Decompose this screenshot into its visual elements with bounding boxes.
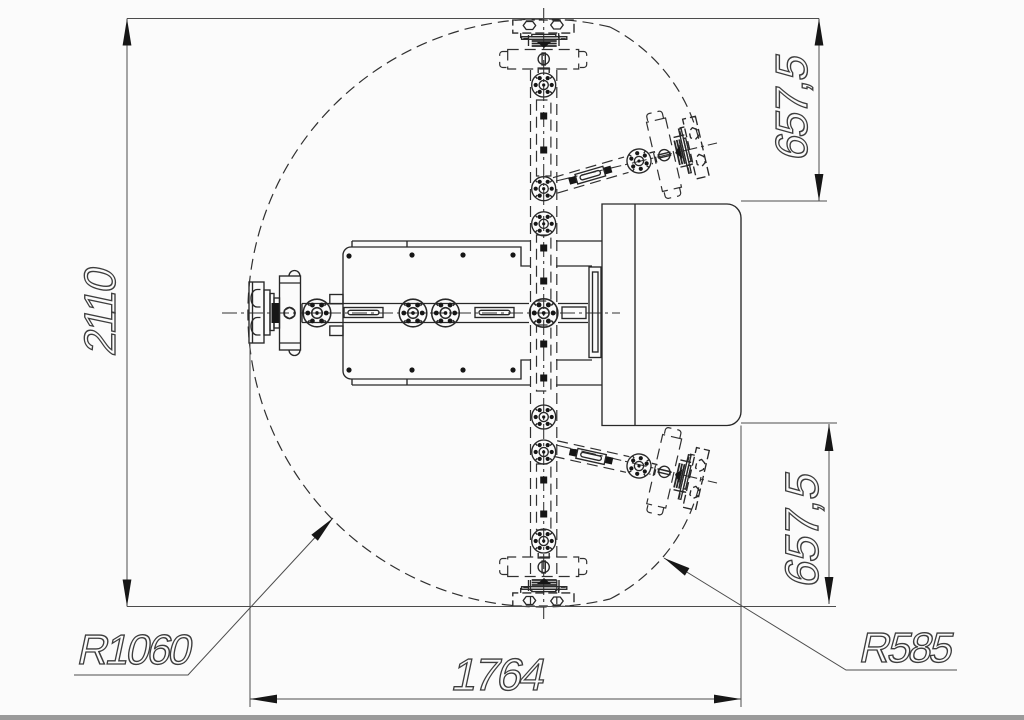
svg-text:657,5: 657,5 <box>776 468 828 592</box>
svg-text:2110: 2110 <box>76 263 124 359</box>
svg-text:1764: 1764 <box>448 649 550 699</box>
svg-text:R585: R585 <box>856 624 957 670</box>
svg-text:657,5: 657,5 <box>766 50 816 164</box>
svg-text:R1060: R1060 <box>74 626 196 672</box>
